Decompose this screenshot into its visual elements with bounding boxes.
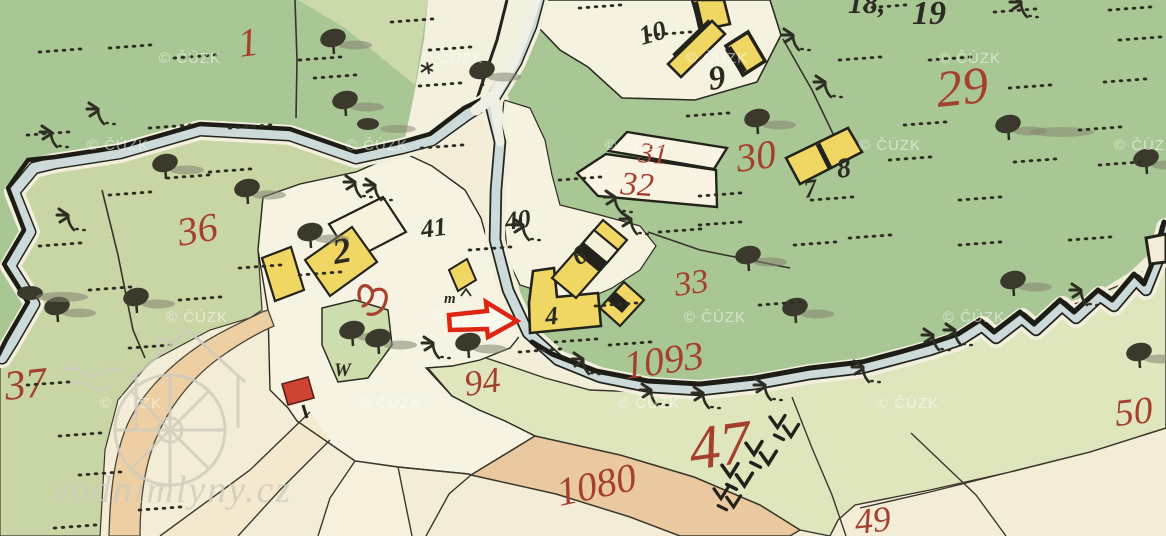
- svg-text:© ČÚZK: © ČÚZK: [87, 137, 149, 154]
- svg-text:18,: 18,: [848, 0, 886, 20]
- svg-text:94: 94: [462, 359, 503, 404]
- svg-text:32: 32: [618, 166, 654, 204]
- svg-text:W: W: [334, 360, 352, 381]
- svg-text:49: 49: [853, 498, 893, 536]
- svg-text:© ČÚZK: © ČÚZK: [686, 50, 748, 67]
- svg-text:vodnimlyny.cz: vodnimlyny.cz: [52, 469, 292, 511]
- svg-text:© ČÚZK: © ČÚZK: [859, 137, 921, 154]
- svg-text:© ČÚZK: © ČÚZK: [359, 395, 421, 412]
- svg-text:© ČÚZK: © ČÚZK: [684, 309, 746, 326]
- svg-text:© ČÚZK: © ČÚZK: [877, 395, 939, 412]
- svg-text:© ČÚZK: © ČÚZK: [1114, 137, 1166, 154]
- svg-text:50: 50: [1113, 389, 1155, 435]
- svg-text:41: 41: [418, 212, 449, 244]
- svg-text:© ČÚZK: © ČÚZK: [100, 395, 162, 412]
- svg-text:© ČÚZK: © ČÚZK: [166, 309, 228, 326]
- svg-text:33: 33: [671, 263, 711, 305]
- svg-text:© ČÚZK: © ČÚZK: [346, 137, 408, 154]
- svg-text:© ČÚZK: © ČÚZK: [159, 50, 221, 67]
- svg-text:36: 36: [173, 204, 221, 255]
- svg-text:© ČÚZK: © ČÚZK: [939, 50, 1001, 67]
- svg-text:© ČÚZK: © ČÚZK: [605, 137, 667, 154]
- svg-text:19: 19: [912, 0, 946, 32]
- svg-text:© ČÚZK: © ČÚZK: [618, 395, 680, 412]
- svg-text:m: m: [444, 291, 456, 307]
- svg-text:© ČÚZK: © ČÚZK: [421, 50, 483, 67]
- svg-text:40: 40: [502, 204, 533, 236]
- svg-text:30: 30: [732, 131, 779, 181]
- svg-text:© ČÚZK: © ČÚZK: [943, 309, 1005, 326]
